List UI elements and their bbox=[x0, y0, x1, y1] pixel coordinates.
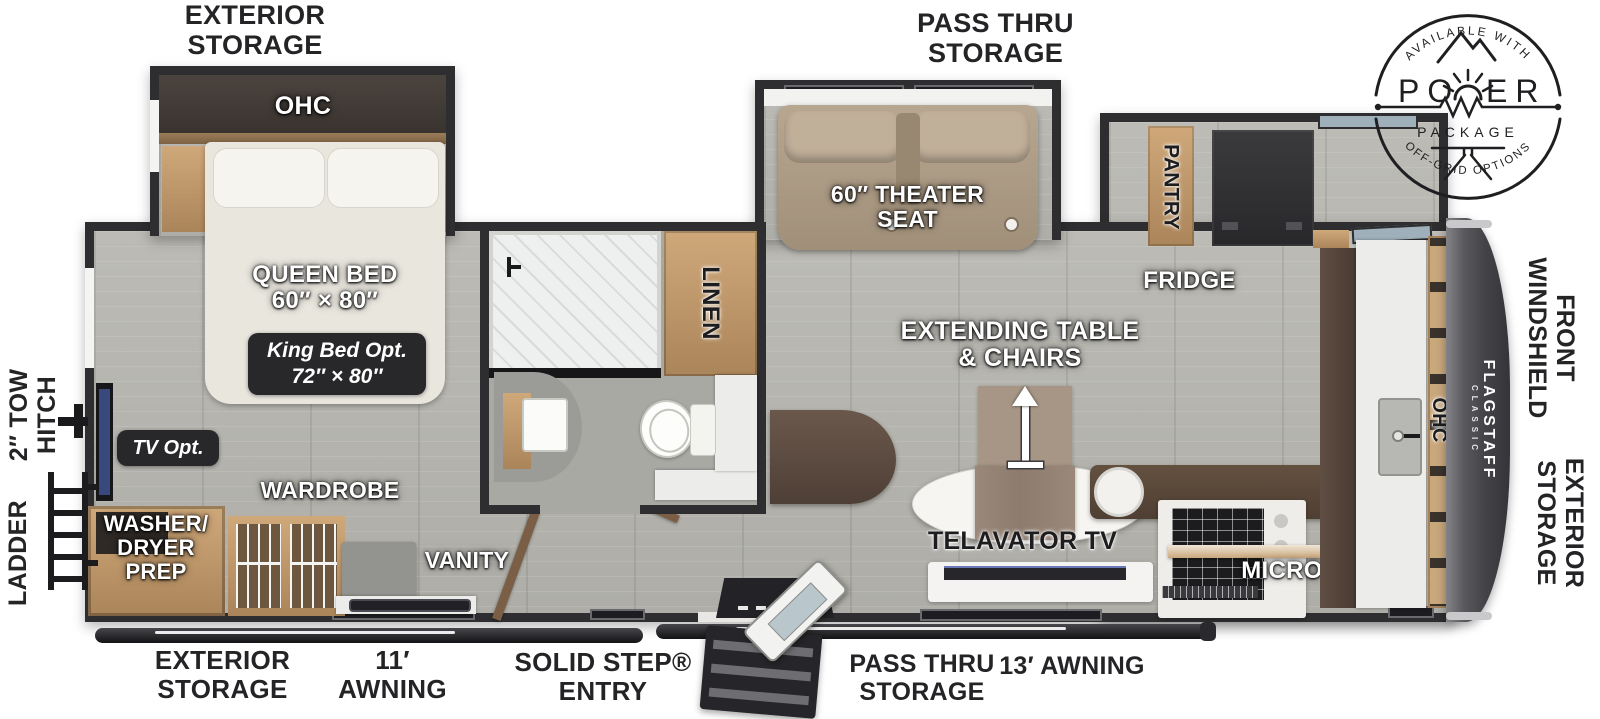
range-vent bbox=[1162, 586, 1258, 598]
step-tread-2 bbox=[711, 664, 811, 682]
bedroom-tv bbox=[96, 383, 113, 501]
label-theater-seat: 60″ THEATER SEAT bbox=[795, 182, 1020, 232]
logo-off-grid: OFF-GRID OPTIONS bbox=[1402, 140, 1533, 177]
awning-bar-left bbox=[95, 628, 643, 643]
bath-sink bbox=[522, 398, 568, 452]
fridge-handle-left bbox=[1222, 222, 1238, 230]
label-pass-thru-storage-top: PASS THRU STORAGE bbox=[903, 8, 1088, 68]
shower bbox=[489, 231, 661, 377]
power-package-logo: AVAILABLE WITH PO ER PACKAGE OFF-GRID OP… bbox=[1368, 2, 1568, 212]
front-kitchen-sink bbox=[1378, 398, 1422, 476]
ladder-icon bbox=[48, 472, 88, 590]
awning-roller-end bbox=[1200, 622, 1216, 641]
label-wardrobe: WARDROBE bbox=[240, 478, 420, 503]
theater-seat-back-right bbox=[912, 111, 1030, 163]
tv-lift-shelf bbox=[928, 562, 1153, 602]
wardrobe-hangers-right bbox=[290, 524, 337, 608]
tv-option-badge: TV Opt. bbox=[117, 430, 219, 466]
front-cap-trim-top bbox=[1446, 220, 1492, 228]
label-bedroom-ohc: OHC bbox=[253, 93, 353, 120]
bottom-wall-window-hall bbox=[590, 609, 645, 620]
fireplace-vent-mark-1 bbox=[738, 606, 748, 610]
pillow-right bbox=[327, 148, 439, 208]
label-linen: LINEN bbox=[697, 243, 723, 363]
bath-counter-bottom bbox=[655, 470, 757, 500]
line-dot-right bbox=[1555, 104, 1561, 110]
label-washer-dryer-prep: WASHER/ DRYER PREP bbox=[86, 512, 226, 583]
logo-package: PACKAGE bbox=[1417, 124, 1519, 140]
label-awning-13: 13′ AWNING bbox=[992, 652, 1152, 680]
label-pass-thru-storage-bottom: PASS THRU STORAGE bbox=[832, 650, 1012, 706]
floorplan-canvas: EXTERIOR STORAGE PASS THRU STORAGE 2″ TO… bbox=[0, 0, 1600, 719]
front-cap-branding: FLAGSTAFF CLASSIC bbox=[1461, 335, 1497, 505]
bed-slide-window bbox=[150, 100, 159, 172]
fridge-handle-right bbox=[1286, 222, 1302, 230]
theater-seat-back-left bbox=[784, 111, 902, 163]
label-exterior-storage-right: EXTERIOR STORAGE bbox=[1532, 448, 1588, 598]
front-cap-trim-bottom bbox=[1446, 612, 1492, 620]
tow-hitch-bar-icon bbox=[58, 417, 88, 426]
corner-entertainment-cabinet bbox=[770, 410, 896, 504]
label-tow-hitch: 2″ TOW HITCH bbox=[5, 350, 61, 480]
series-name: CLASSIC bbox=[1470, 335, 1479, 505]
up-arrow-head-icon bbox=[1012, 386, 1038, 406]
shower-valve-icon bbox=[507, 257, 511, 277]
up-arrow-icon bbox=[1022, 404, 1029, 462]
label-solid-step-entry: SOLID STEP® ENTRY bbox=[505, 648, 701, 706]
wardrobe-hangers-left bbox=[236, 524, 281, 608]
label-extending-table: EXTENDING TABLE & CHAIRS bbox=[890, 318, 1150, 372]
telavator-tv-screen bbox=[944, 566, 1126, 580]
toilet-seat-ring bbox=[646, 406, 692, 455]
pillow-left bbox=[213, 148, 325, 208]
ladder-mount-top bbox=[86, 484, 98, 490]
rear-wall-window bbox=[85, 268, 94, 368]
label-queen-bed: QUEEN BED 60″ × 80″ bbox=[225, 262, 425, 314]
vanity-sink bbox=[349, 599, 471, 612]
logo-power-right: ER bbox=[1486, 73, 1546, 109]
bath-counter-side bbox=[715, 375, 757, 471]
awning-bar-left-highlight bbox=[155, 631, 455, 634]
label-fridge: FRIDGE bbox=[1122, 268, 1257, 294]
bedroom-tv-screen bbox=[99, 389, 110, 495]
up-arrow-base-icon bbox=[1008, 462, 1043, 468]
bathroom-door-opening bbox=[540, 505, 640, 514]
refrigerator bbox=[1212, 130, 1314, 246]
label-ladder: LADDER bbox=[4, 488, 32, 618]
bottom-wall-window-tv bbox=[920, 609, 1102, 621]
king-bed-option-badge: King Bed Opt. 72″ × 80″ bbox=[248, 333, 426, 395]
theater-slide-back-band bbox=[764, 89, 1052, 106]
nightstand-left bbox=[162, 146, 207, 232]
stove-knob-1 bbox=[1274, 514, 1288, 528]
logo-power-left: PO bbox=[1398, 73, 1460, 109]
toilet-tank bbox=[690, 404, 716, 456]
label-exterior-storage-bottom: EXTERIOR STORAGE bbox=[135, 646, 310, 704]
front-wall-cabinets bbox=[1320, 248, 1356, 608]
line-dot-left bbox=[1375, 104, 1381, 110]
sink-drain-icon bbox=[1392, 430, 1404, 442]
label-telavator-tv: TELAVATOR TV bbox=[905, 528, 1140, 556]
brand-name: FLAGSTAFF bbox=[1479, 335, 1497, 505]
kitchen-round-sink bbox=[1094, 467, 1144, 517]
label-pantry: PANTRY bbox=[1159, 127, 1182, 247]
label-exterior-storage-top: EXTERIOR STORAGE bbox=[165, 0, 345, 60]
kitchen-ohc-top bbox=[1313, 230, 1349, 248]
wardrobe-cabinet bbox=[228, 516, 345, 616]
step-tread-3 bbox=[709, 688, 809, 706]
label-front-windshield: FRONT WINDSHIELD bbox=[1523, 251, 1579, 426]
ladder-mount-bottom bbox=[86, 560, 98, 566]
label-awning-11: 11′ AWNING bbox=[320, 646, 465, 704]
